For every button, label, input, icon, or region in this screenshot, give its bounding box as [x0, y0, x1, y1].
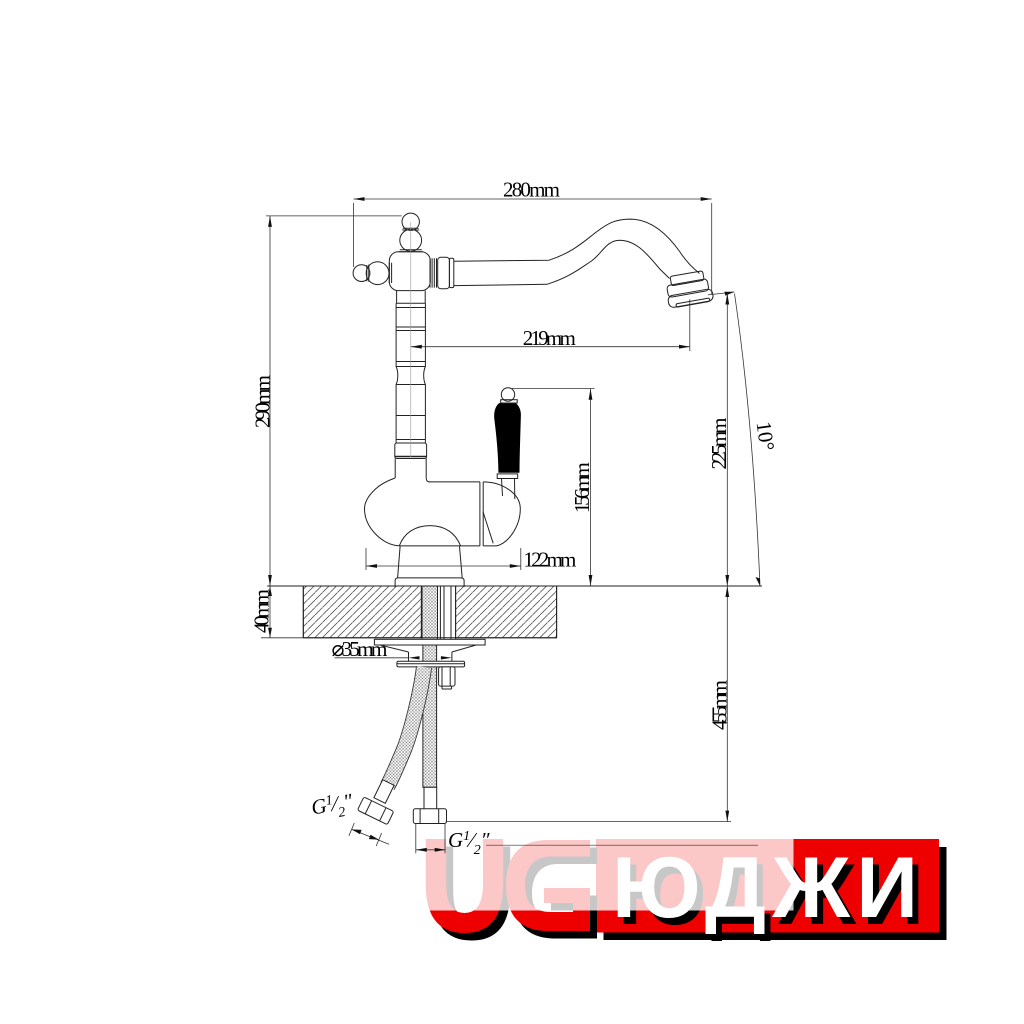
svg-text:10°: 10° — [752, 420, 780, 452]
svg-text:225mm: 225mm — [707, 418, 731, 470]
svg-text:219mm: 219mm — [523, 326, 576, 350]
svg-text:455mm: 455mm — [708, 680, 732, 730]
svg-text:⌀35mm: ⌀35mm — [332, 637, 388, 661]
svg-text:290mm: 290mm — [251, 375, 275, 428]
svg-text:156mm: 156mm — [570, 462, 594, 513]
svg-text:40mm: 40mm — [250, 589, 274, 633]
svg-text:122mm: 122mm — [523, 548, 576, 572]
svg-text:280mm: 280mm — [503, 178, 560, 202]
